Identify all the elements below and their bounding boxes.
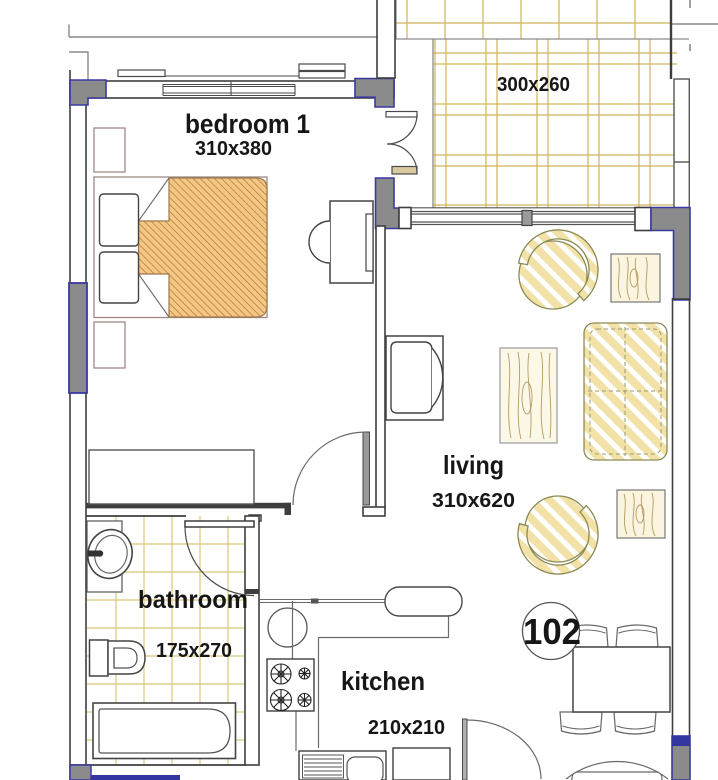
svg-text:living: living [443,450,504,480]
svg-text:102: 102 [523,611,581,652]
svg-text:kitchen: kitchen [341,666,425,696]
svg-text:210x210: 210x210 [368,717,445,739]
svg-text:310x620: 310x620 [432,490,515,512]
svg-text:bedroom 1: bedroom 1 [185,109,310,139]
svg-text:175x270: 175x270 [156,640,232,662]
svg-text:300x260: 300x260 [497,74,570,96]
svg-text:bathroom: bathroom [138,586,248,614]
svg-text:310x380: 310x380 [195,138,272,160]
